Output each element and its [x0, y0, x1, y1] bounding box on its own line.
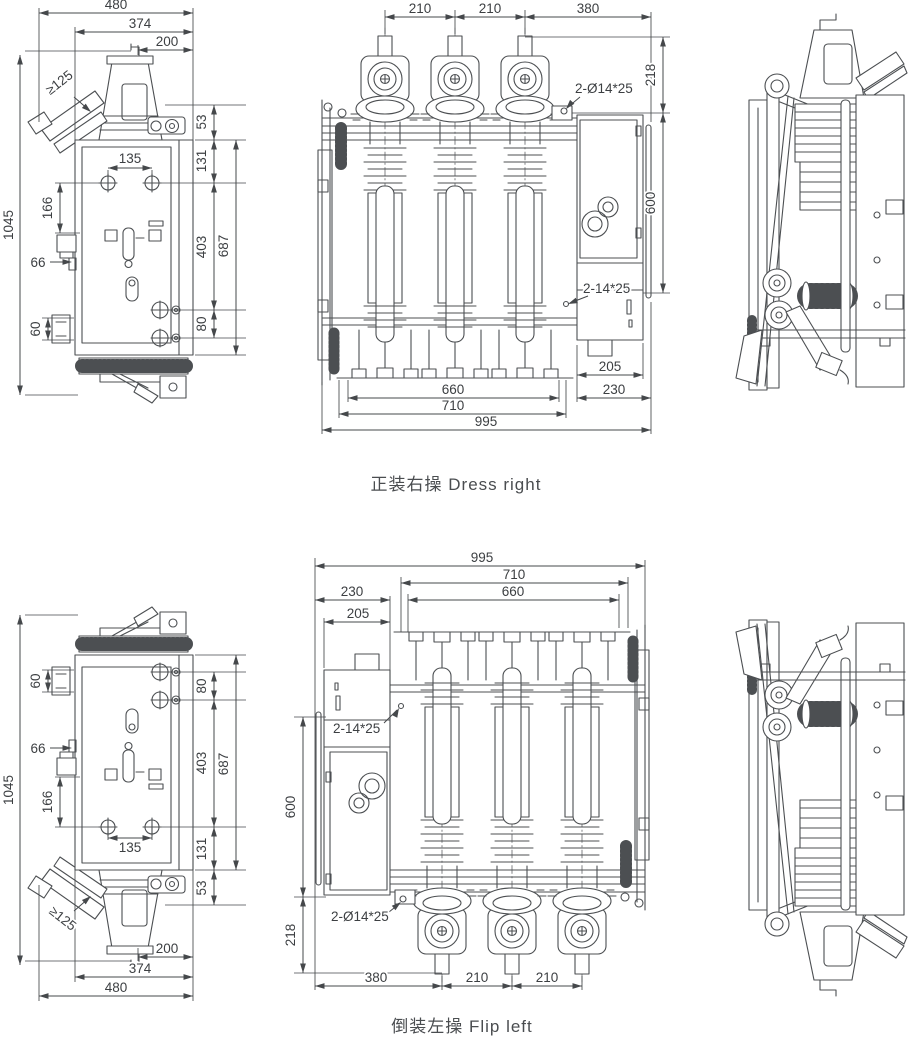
dim-label-403: 403: [194, 236, 209, 259]
dim-bottom-bracket-60: 60: [28, 670, 51, 692]
dim-label-210b: 210: [479, 1, 502, 16]
dim-bottom-bushing-height-218: 218: [283, 897, 306, 973]
caption-top: 正装右操 Dress right: [371, 475, 542, 494]
dim-top-offset-205: 205: [577, 359, 643, 378]
dim-label-135: 135: [119, 151, 142, 166]
note-label-2-14x25: 2-14*25: [583, 281, 630, 296]
dim-bottom-offset-205: 205: [324, 606, 390, 625]
right-view-top-drawing: [736, 14, 907, 390]
dim-label-166: 166: [40, 197, 55, 220]
dim-label-380: 380: [577, 1, 600, 16]
drawing-sheet: 480 374 200 ≥125 1045 53 131 403 80 687 …: [0, 0, 908, 1041]
dim-bottom-offset-131: 131: [194, 827, 217, 870]
dim-label-ge125: ≥125: [43, 67, 76, 97]
dim-label-1045: 1045: [1, 210, 16, 240]
dim-label-1045-b: 1045: [1, 775, 16, 805]
dim-label-205-b: 205: [347, 606, 370, 621]
dim-bottom-pitch-left: 210: [442, 970, 512, 989]
dim-top-body-height-687: 687: [216, 140, 239, 355]
dim-top-gap-53: 53: [194, 105, 217, 140]
dim-bottom-hole-offset-80: 80: [194, 672, 217, 700]
note-label-2-d14x25: 2-Ø14*25: [575, 81, 633, 96]
dim-top-overall-width-995: 995: [322, 414, 651, 433]
dim-label-210b-b: 210: [536, 970, 559, 985]
dim-label-710: 710: [442, 398, 465, 413]
note-label-2-14x25-b: 2-14*25: [333, 721, 380, 736]
dim-label-230-b: 230: [341, 584, 364, 599]
engineering-drawing-canvas: 480 374 200 ≥125 1045 53 131 403 80 687 …: [0, 0, 908, 1041]
dim-top-pitch-left: 210: [385, 1, 455, 20]
dim-label-600: 600: [643, 192, 658, 215]
dim-bottom-overall-height: 1045: [1, 615, 23, 965]
dim-top-tab-offset-66: 66: [30, 255, 72, 270]
dim-label-66: 66: [30, 255, 45, 270]
dim-label-80-b: 80: [194, 678, 209, 693]
dim-label-687-b: 687: [216, 753, 231, 776]
dim-label-218-b: 218: [283, 924, 298, 947]
dim-label-60-b: 60: [28, 673, 43, 688]
dim-bottom-body-height-600: 600: [283, 717, 306, 897]
dim-label-403-b: 403: [194, 752, 209, 775]
note-bottom-mounting-holes-top: 2-Ø14*25: [331, 900, 403, 924]
dim-label-ge125-b: ≥125: [46, 903, 79, 933]
dim-top-frame-width: 374: [75, 16, 193, 35]
dim-label-480: 480: [105, 0, 128, 12]
dim-top-box-span-380: 380: [525, 1, 651, 20]
dim-bottom-body-height-687: 687: [216, 655, 239, 870]
dim-label-995: 995: [475, 414, 498, 429]
dim-label-66-b: 66: [30, 741, 45, 756]
dim-label-710-b: 710: [503, 567, 526, 582]
dim-label-135-b: 135: [119, 840, 142, 855]
dim-bottom-lever-offset-166: 166: [40, 777, 63, 827]
dim-label-53-b: 53: [194, 880, 209, 895]
dim-label-380-b: 380: [365, 970, 388, 985]
note-label-2-d14x25-b: 2-Ø14*25: [331, 909, 389, 924]
dim-label-131-b: 131: [194, 838, 209, 861]
dim-label-205: 205: [599, 359, 622, 374]
dim-label-60: 60: [28, 321, 43, 336]
dim-top-overall-height: 1045: [1, 55, 23, 395]
dim-label-374-b: 374: [129, 961, 152, 976]
dim-bottom-overall-width-480: 480: [39, 980, 193, 999]
dim-bottom-base-span-660: 660: [408, 584, 619, 603]
dim-label-210a-b: 210: [466, 970, 489, 985]
dim-bottom-gap-53: 53: [194, 870, 217, 905]
dim-top-offset-131: 131: [194, 140, 217, 183]
dim-top-frame-span-710: 710: [339, 398, 566, 417]
dim-top-offset-230: 230: [577, 382, 651, 401]
side-view-top-drawing: [28, 44, 193, 403]
dim-label-600-b: 600: [283, 796, 298, 819]
dim-label-230: 230: [603, 382, 626, 397]
dim-top-overall-width: 480: [39, 0, 193, 16]
dim-top-bracket-60: 60: [28, 318, 51, 340]
dim-top-bushing-height-218: 218: [643, 37, 666, 113]
dim-label-687: 687: [216, 235, 231, 258]
dim-label-200-b: 200: [156, 941, 179, 956]
dim-bottom-offset-230: 230: [315, 584, 390, 603]
right-view-bottom-drawing: [736, 620, 907, 996]
dim-top-pitch-right: 210: [455, 1, 525, 20]
dim-label-53: 53: [194, 114, 209, 129]
note-top-mounting-holes-top: 2-Ø14*25: [564, 81, 633, 111]
caption-bottom: 倒装左操 Flip left: [391, 1017, 533, 1036]
dim-label-200: 200: [156, 34, 179, 49]
front-view-bottom-drawing: [316, 625, 649, 982]
dim-label-480-b: 480: [105, 980, 128, 995]
dim-top-min-clearance: ≥125: [43, 67, 93, 114]
dim-label-166-b: 166: [40, 791, 55, 814]
dim-label-210a: 210: [409, 1, 432, 16]
dim-label-660-b: 660: [502, 584, 525, 599]
dim-label-374: 374: [129, 16, 152, 31]
dim-bottom-pitch-right: 210: [512, 970, 582, 989]
dim-top-lever-offset-166: 166: [40, 183, 63, 233]
dim-label-995-b: 995: [471, 550, 494, 565]
dim-top-mid-height: 403: [194, 183, 217, 310]
dim-label-131: 131: [194, 150, 209, 173]
dim-label-80: 80: [194, 316, 209, 331]
dim-top-hole-offset-80: 80: [194, 310, 217, 338]
dim-label-218: 218: [643, 64, 658, 87]
dim-bottom-frame-width-374: 374: [75, 961, 193, 980]
dim-top-handle-offset: 200: [138, 34, 193, 53]
dim-label-660: 660: [442, 382, 465, 397]
dim-bottom-mid-height-403: 403: [194, 700, 217, 827]
dim-bottom-overall-width-995: 995: [315, 550, 645, 569]
dim-bottom-tab-offset-66: 66: [30, 741, 72, 756]
